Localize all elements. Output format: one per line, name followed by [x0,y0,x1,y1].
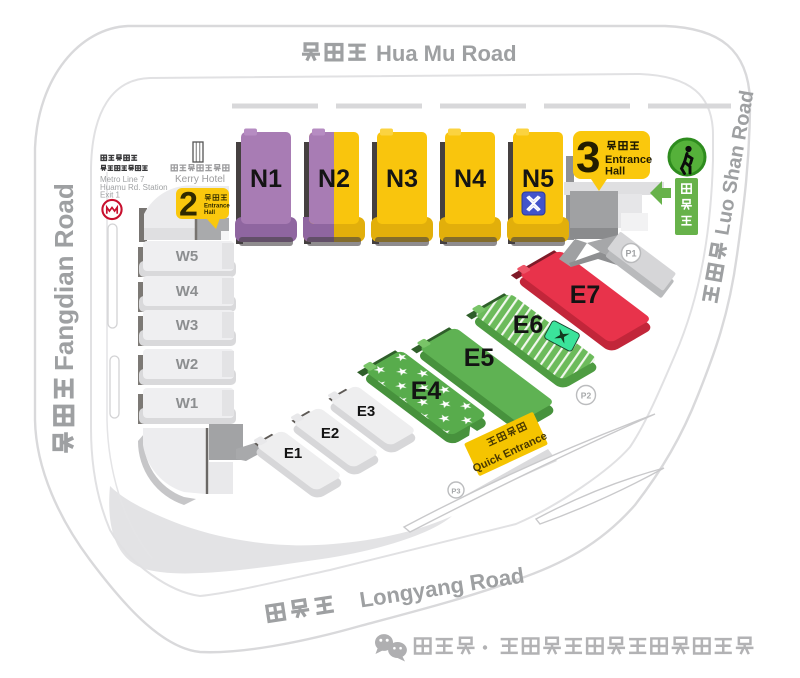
svg-text:Entrance: Entrance [605,154,652,166]
svg-text:Hall: Hall [605,166,625,178]
svg-text:W4: W4 [176,283,199,300]
svg-text:N4: N4 [454,165,486,193]
svg-text:Entrance: Entrance [204,204,230,210]
svg-text:E7: E7 [570,281,601,309]
svg-text:N5: N5 [522,165,554,193]
svg-text:E1: E1 [284,445,302,462]
svg-text:N2: N2 [318,165,350,193]
svg-text:3: 3 [576,133,600,182]
svg-text:N1: N1 [250,165,282,193]
svg-text:E3: E3 [357,403,375,420]
svg-text:Exit 1: Exit 1 [100,191,121,200]
svg-text:W3: W3 [176,317,199,334]
svg-text:E6: E6 [513,311,544,339]
svg-text:W2: W2 [176,356,199,373]
svg-text:N3: N3 [386,165,418,193]
svg-text:E2: E2 [321,425,339,442]
svg-text:P1: P1 [625,249,636,259]
svg-text:P2: P2 [581,391,592,401]
svg-text:E5: E5 [464,344,495,372]
svg-text:Hua Mu Road: Hua Mu Road [376,41,517,66]
svg-text:W5: W5 [176,248,199,265]
svg-text:Hall: Hall [204,210,215,216]
svg-text:Kerry Hotel: Kerry Hotel [175,174,225,185]
svg-text:P3: P3 [451,487,460,496]
svg-text:2: 2 [179,186,198,224]
svg-text:Fangdian Road: Fangdian Road [49,183,79,371]
svg-text:E4: E4 [411,377,442,405]
svg-text:W1: W1 [176,395,199,412]
